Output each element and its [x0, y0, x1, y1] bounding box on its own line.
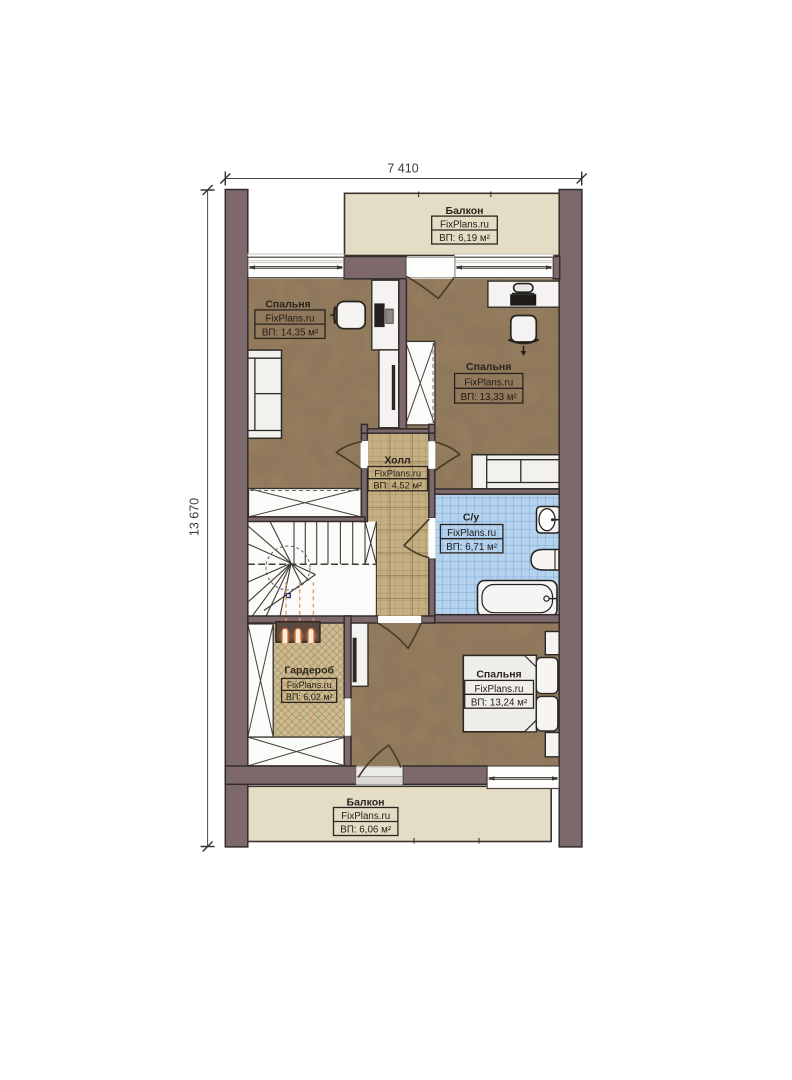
svg-text:С/у: С/у: [463, 512, 480, 524]
svg-text:ВП: 14,35 м²: ВП: 14,35 м²: [262, 327, 319, 338]
svg-text:FixPlans.ru: FixPlans.ru: [341, 811, 390, 822]
svg-text:FixPlans.ru: FixPlans.ru: [464, 378, 513, 389]
svg-text:ВП: 13,33 м²: ВП: 13,33 м²: [461, 392, 518, 403]
svg-text:Холл: Холл: [384, 455, 410, 467]
svg-text:ВП: 6,71 м²: ВП: 6,71 м²: [446, 542, 498, 553]
svg-text:FixPlans.ru: FixPlans.ru: [266, 314, 315, 325]
svg-text:7 410: 7 410: [387, 162, 418, 176]
svg-text:Спальня: Спальня: [466, 361, 511, 373]
svg-text:ВП: 4,52 м²: ВП: 4,52 м²: [373, 480, 422, 491]
svg-text:ВП: 13,24 м²: ВП: 13,24 м²: [471, 698, 528, 709]
svg-text:Спальня: Спальня: [476, 669, 521, 681]
svg-text:Балкон: Балкон: [347, 797, 385, 809]
svg-text:Балкон: Балкон: [446, 205, 484, 217]
svg-text:13 670: 13 670: [188, 498, 202, 536]
svg-text:FixPlans.ru: FixPlans.ru: [374, 467, 421, 478]
svg-text:Гардероб: Гардероб: [284, 665, 334, 677]
svg-text:Спальня: Спальня: [265, 299, 310, 311]
svg-text:FixPlans.ru: FixPlans.ru: [447, 528, 496, 539]
svg-text:FixPlans.ru: FixPlans.ru: [440, 219, 489, 230]
svg-text:ВП: 6,19 м²: ВП: 6,19 м²: [439, 233, 491, 244]
svg-text:ВП: 6,06 м²: ВП: 6,06 м²: [340, 825, 392, 836]
svg-text:FixPlans.ru: FixPlans.ru: [475, 684, 524, 695]
svg-text:ВП: 6,02 м²: ВП: 6,02 м²: [286, 692, 333, 702]
svg-text:FixPlans.ru: FixPlans.ru: [287, 680, 332, 690]
